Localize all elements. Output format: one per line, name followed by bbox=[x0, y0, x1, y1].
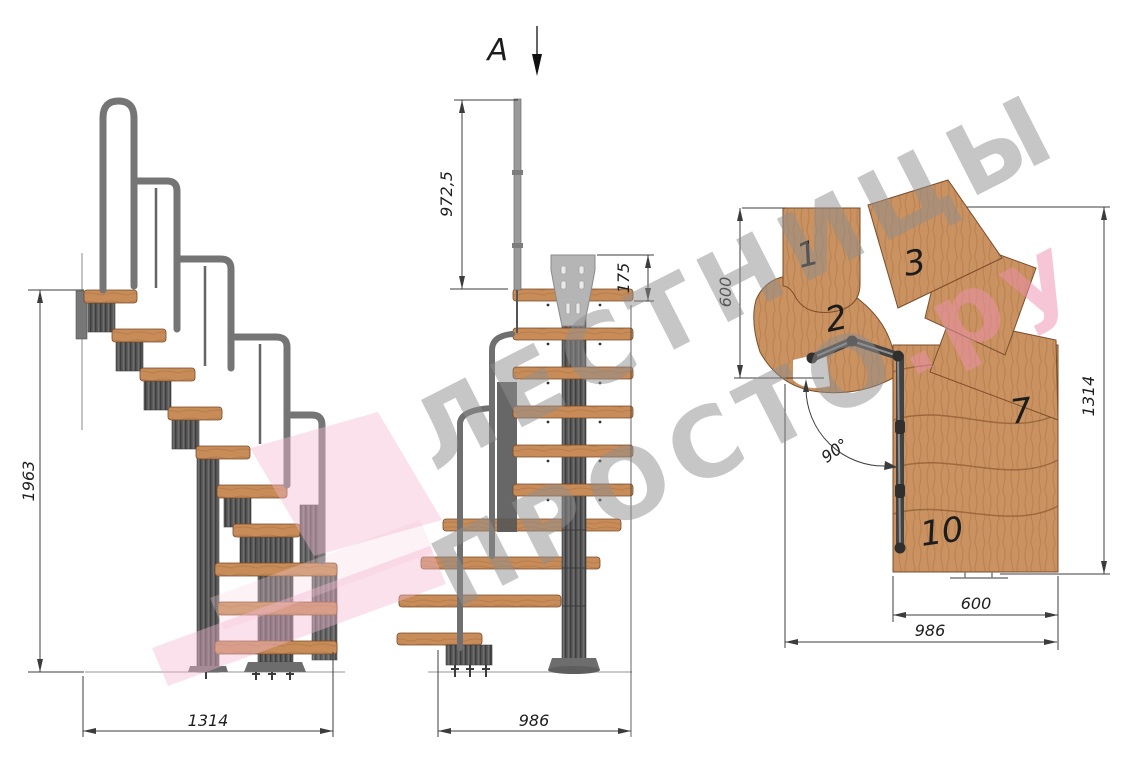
watermark: ЛЕСТНИЦЫ ПРОСТО.ру bbox=[152, 70, 1096, 686]
dim-label-front-width: 986 bbox=[519, 711, 550, 730]
foot-plate bbox=[950, 572, 1008, 578]
support-column bbox=[116, 342, 143, 371]
anchor-bolts bbox=[206, 672, 294, 680]
handrail-end-cap bbox=[895, 543, 906, 554]
dim-label-width: 1314 bbox=[188, 711, 229, 730]
section-label: A bbox=[485, 33, 508, 68]
column-base bbox=[548, 666, 600, 674]
tread bbox=[196, 446, 250, 459]
dim-label-flight-width: 600 bbox=[961, 594, 992, 613]
step-number-10: 10 bbox=[918, 509, 966, 555]
section-marker: A bbox=[485, 26, 542, 76]
support-column bbox=[88, 303, 115, 332]
handrail-hoop bbox=[103, 101, 134, 290]
drawing-canvas: 1963 1314 A bbox=[0, 0, 1130, 763]
dim-label-length: 1314 bbox=[1079, 376, 1098, 417]
anchor-bolts bbox=[451, 665, 490, 677]
support-column bbox=[144, 381, 171, 410]
tread bbox=[233, 524, 300, 537]
dim-label-height: 1963 bbox=[19, 461, 38, 502]
tread bbox=[112, 329, 166, 342]
dim-label-post-height: 972,5 bbox=[437, 171, 456, 217]
rail-post bbox=[514, 99, 521, 290]
support-column bbox=[224, 497, 251, 527]
handrail-balusters bbox=[156, 188, 260, 444]
tread bbox=[84, 290, 137, 303]
rail-post-collar bbox=[512, 170, 523, 175]
support-column bbox=[172, 420, 199, 449]
rail-post-collar bbox=[512, 243, 523, 248]
handrail-joint bbox=[895, 420, 905, 434]
handrail-joint bbox=[895, 484, 905, 498]
tread bbox=[140, 368, 195, 381]
bottom-support-block bbox=[446, 645, 492, 665]
tread bbox=[397, 633, 482, 645]
dim-label-total-width: 986 bbox=[915, 621, 946, 640]
staircase-technical-drawing: 1963 1314 A bbox=[0, 0, 1130, 763]
section-arrow-head bbox=[532, 54, 542, 76]
dimension-post-972-5 bbox=[450, 100, 518, 289]
tread bbox=[168, 407, 222, 420]
base-plate bbox=[244, 662, 306, 672]
